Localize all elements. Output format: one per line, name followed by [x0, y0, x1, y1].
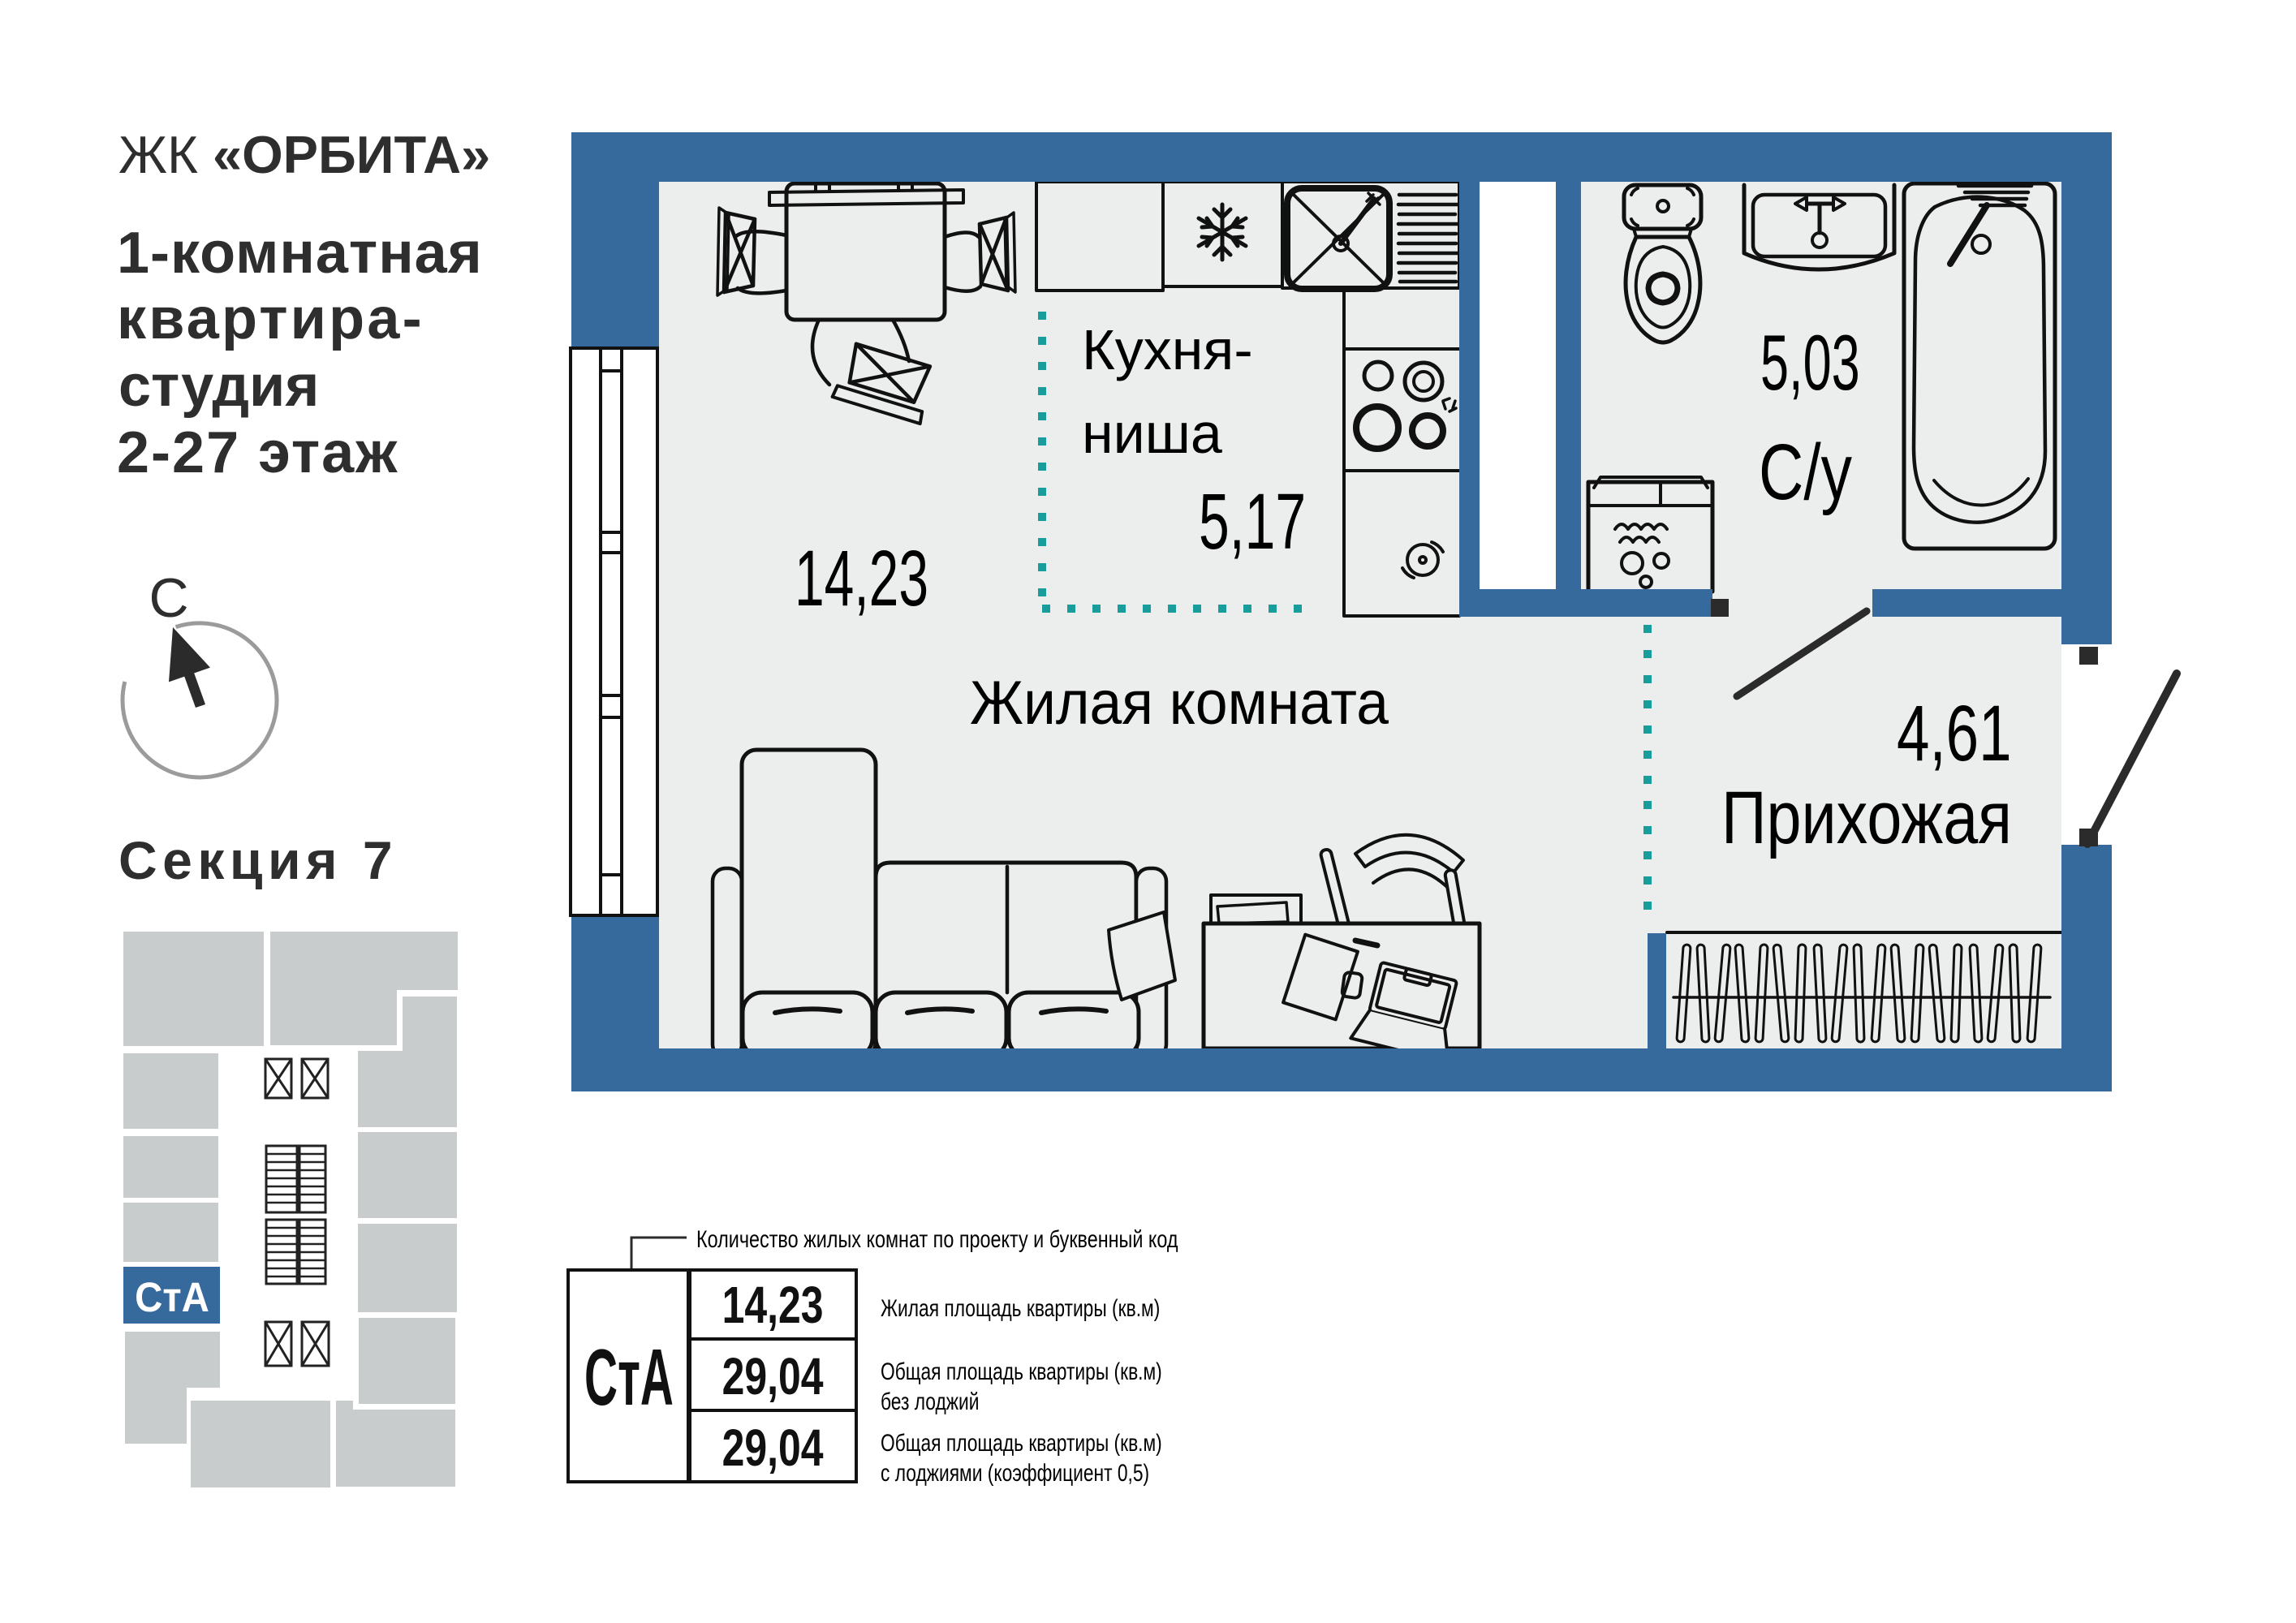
- svg-text:С/у: С/у: [1759, 428, 1852, 516]
- svg-text:ЖК «ОРБИТА»: ЖК «ОРБИТА»: [118, 125, 490, 184]
- svg-text:2-27 этаж: 2-27 этаж: [117, 420, 398, 485]
- svg-text:Количество жилых комнат по про: Количество жилых комнат по проекту и бук…: [696, 1225, 1178, 1252]
- svg-text:Прихожая: Прихожая: [1721, 777, 2012, 860]
- svg-text:студия: студия: [118, 354, 319, 419]
- svg-text:Жилая комната: Жилая комната: [970, 668, 1389, 738]
- svg-text:квартира-: квартира-: [117, 286, 424, 351]
- svg-text:С: С: [149, 567, 188, 629]
- svg-text:без лоджий: без лоджий: [881, 1388, 979, 1415]
- svg-text:Кухня-: Кухня-: [1082, 318, 1253, 381]
- svg-text:29,04: 29,04: [722, 1348, 824, 1406]
- svg-text:4,61: 4,61: [1897, 690, 2012, 778]
- svg-text:Секция 7: Секция 7: [118, 830, 398, 890]
- svg-text:5,03: 5,03: [1760, 319, 1860, 407]
- svg-text:Жилая площадь квартиры (кв.м): Жилая площадь квартиры (кв.м): [881, 1294, 1160, 1322]
- svg-text:1-комнатная: 1-комнатная: [117, 221, 483, 286]
- svg-text:с лоджиями (коэффициент 0,5): с лоджиями (коэффициент 0,5): [881, 1459, 1149, 1487]
- svg-text:ниша: ниша: [1082, 402, 1222, 465]
- svg-text:14,23: 14,23: [722, 1276, 824, 1334]
- svg-text:Общая площадь квартиры (кв.м): Общая площадь квартиры (кв.м): [881, 1429, 1162, 1457]
- svg-text:5,17: 5,17: [1199, 477, 1306, 566]
- svg-text:СтА: СтА: [135, 1274, 209, 1320]
- svg-text:14,23: 14,23: [795, 534, 928, 622]
- svg-text:29,04: 29,04: [722, 1419, 824, 1477]
- svg-text:Общая площадь квартиры (кв.м): Общая площадь квартиры (кв.м): [881, 1358, 1162, 1385]
- svg-text:СтА: СтА: [584, 1332, 674, 1422]
